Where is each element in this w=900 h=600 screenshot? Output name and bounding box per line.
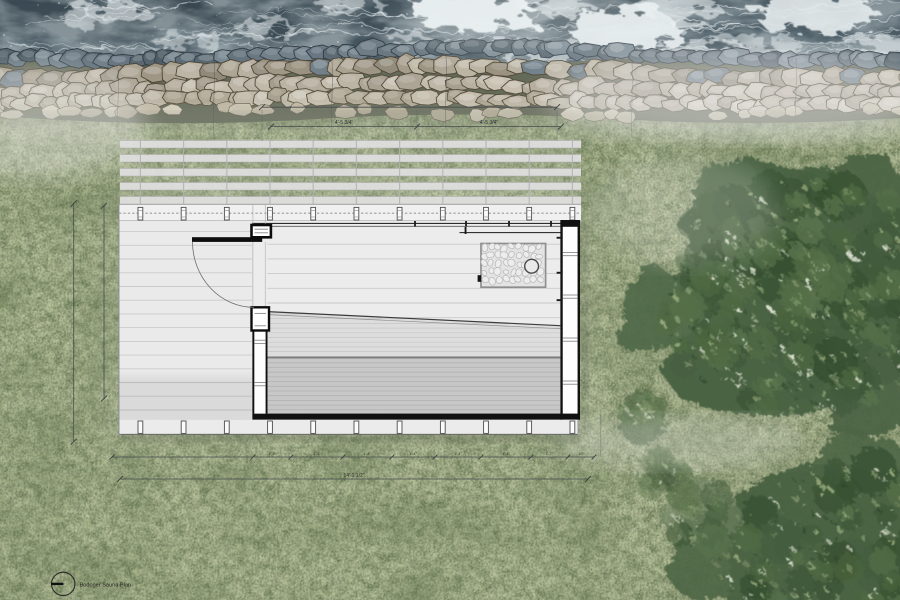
svg-text:1'-3": 1'-3" — [268, 452, 276, 456]
svg-text:1'-2": 1'-2" — [545, 452, 553, 456]
svg-text:14'-1 1/2": 14'-1 1/2" — [343, 473, 364, 479]
svg-text:1'-4": 1'-4" — [313, 452, 321, 456]
svg-text:1'-4": 1'-4" — [454, 452, 462, 456]
svg-text:4'-5 3/4": 4'-5 3/4" — [335, 120, 354, 126]
svg-text:4'-5 3/4": 4'-5 3/4" — [480, 120, 499, 126]
svg-text:1'-4": 1'-4" — [502, 452, 510, 456]
svg-text:Bodoger Sauna Plan: Bodoger Sauna Plan — [80, 583, 132, 589]
svg-text:1'-4": 1'-4" — [363, 452, 371, 456]
svg-text:10": 10" — [578, 452, 584, 456]
svg-text:1'-4": 1'-4" — [409, 452, 417, 456]
